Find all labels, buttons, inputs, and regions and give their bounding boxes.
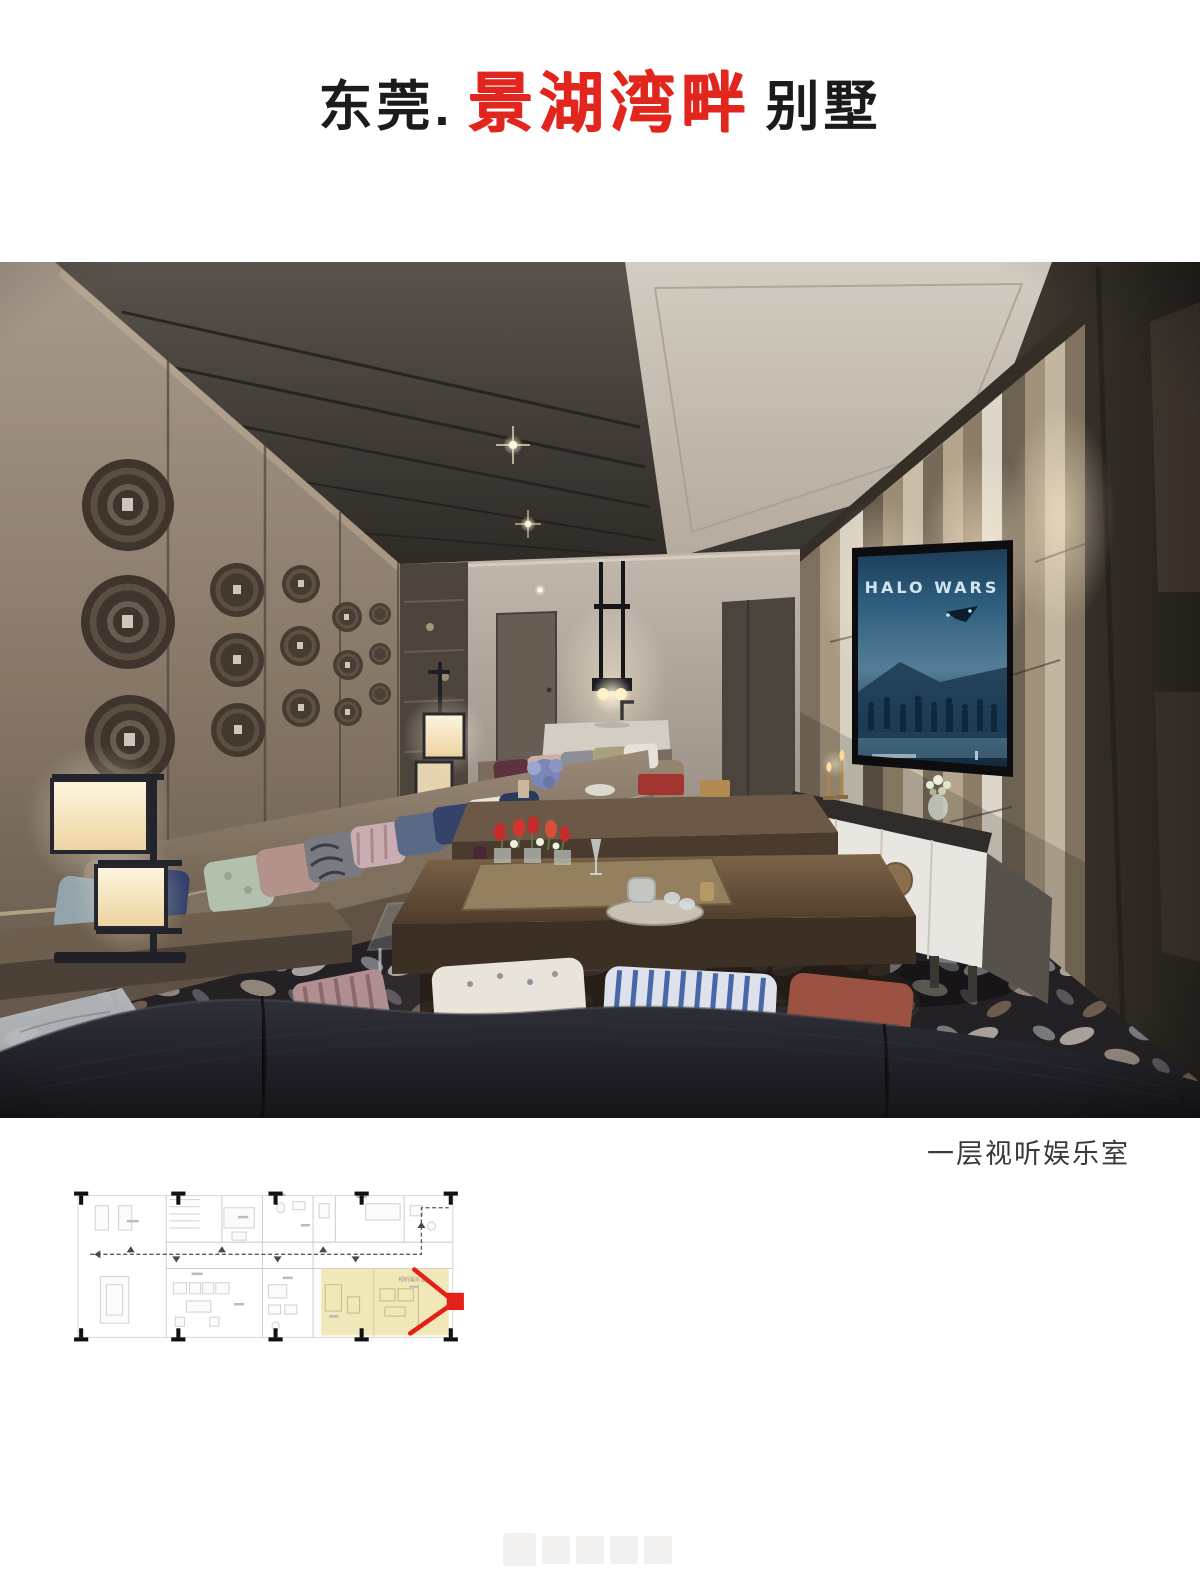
watermark-glyph (576, 1536, 604, 1564)
title-highlight: 景湖湾畔 (468, 65, 752, 141)
title-prefix: 东莞. (318, 77, 453, 137)
watermark-logo (503, 1533, 536, 1566)
photo-caption: 一层视听娱乐室 (927, 1132, 1130, 1171)
rendering-photo: HALO WARS (0, 262, 1200, 1118)
highlight-room (321, 1269, 449, 1336)
watermark-glyph (644, 1536, 672, 1564)
floor-plan: 视听娱乐室 (70, 1183, 470, 1351)
vignette (0, 262, 1200, 1118)
watermark-glyph (542, 1536, 570, 1564)
page-title: 东莞.景湖湾畔别墅 (0, 50, 1200, 144)
watermark (503, 1533, 683, 1569)
title-suffix: 别墅 (766, 77, 882, 137)
rendering-scene: HALO WARS (0, 262, 1200, 1118)
watermark-glyph (610, 1536, 638, 1564)
